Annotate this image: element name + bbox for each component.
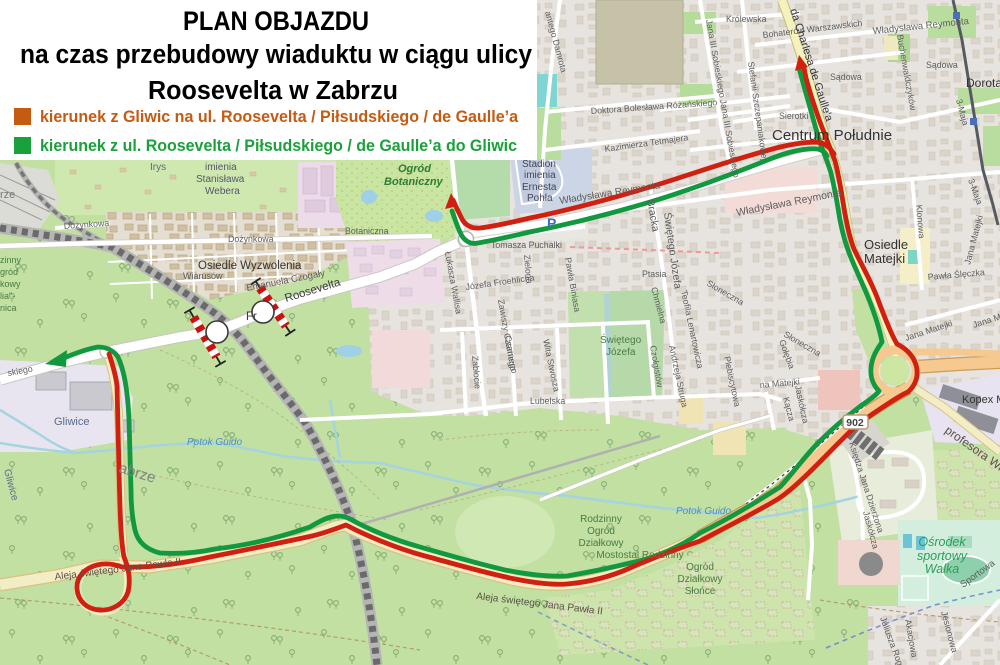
svg-text:Gliwice: Gliwice (54, 416, 89, 428)
svg-text:Królewska: Królewska (726, 14, 767, 24)
svg-text:Ogród: Ogród (686, 562, 714, 573)
svg-text:Ogród: Ogród (398, 163, 431, 175)
svg-text:lia"-: lia"- (0, 291, 15, 301)
svg-text:Wiarusów: Wiarusów (183, 271, 223, 281)
svg-text:Osiedle: Osiedle (864, 237, 908, 252)
svg-text:Sierotki: Sierotki (779, 111, 808, 121)
svg-text:Sądowa: Sądowa (830, 72, 862, 82)
svg-text:Fr: Fr (246, 311, 257, 323)
svg-text:Rodzinny: Rodzinny (580, 514, 622, 525)
svg-text:Tomasza Puchalki: Tomasza Puchalki (491, 240, 562, 250)
svg-text:Józefa: Józefa (606, 347, 636, 358)
svg-text:Irys: Irys (150, 162, 166, 173)
svg-text:Sądowa: Sądowa (926, 60, 958, 70)
svg-text:Botaniczna: Botaniczna (345, 226, 389, 236)
svg-text:Osiedle Wyzwolenia: Osiedle Wyzwolenia (198, 260, 302, 272)
svg-text:Botaniczny: Botaniczny (384, 176, 444, 188)
svg-text:Potok Guido: Potok Guido (676, 506, 731, 517)
svg-text:Matejki: Matejki (864, 251, 905, 266)
svg-text:sportowy: sportowy (917, 549, 968, 563)
svg-text:Mostostal Rodzinny: Mostostal Rodzinny (596, 550, 683, 561)
svg-text:imienia: imienia (524, 170, 556, 181)
svg-text:Pohla: Pohla (527, 193, 553, 204)
svg-text:gród: gród (0, 267, 18, 277)
svg-text:Ogród: Ogród (587, 526, 615, 537)
svg-text:rze: rze (0, 189, 15, 201)
svg-text:Ośrodek: Ośrodek (918, 535, 966, 549)
svg-text:P: P (547, 215, 556, 231)
svg-text:Słońce: Słońce (685, 586, 716, 597)
svg-text:Webera: Webera (205, 186, 240, 197)
svg-text:Stanisława: Stanisława (196, 174, 245, 185)
svg-text:zinny: zinny (0, 255, 22, 265)
svg-text:Ernesta: Ernesta (522, 182, 557, 193)
svg-text:nica: nica (0, 303, 17, 313)
svg-text:na czas przebudowy wiaduktu w: na czas przebudowy wiaduktu w ciągu ulic… (20, 41, 533, 69)
svg-text:Ptasia: Ptasia (642, 269, 667, 279)
svg-text:Dorota: Dorota (966, 76, 1000, 90)
svg-text:kierunek z Gliwic na ul. Roose: kierunek z Gliwic na ul. Roosevelta / Pi… (40, 108, 519, 126)
svg-text:Potok Guido: Potok Guido (187, 437, 242, 448)
svg-text:Działkowy: Działkowy (677, 574, 722, 585)
svg-text:kierunek z ul. Roosevelta / Pi: kierunek z ul. Roosevelta / Piłsudskiego… (40, 137, 517, 155)
svg-text:kowy: kowy (0, 279, 21, 289)
svg-text:PLAN OBJAZDU: PLAN OBJAZDU (183, 6, 369, 36)
svg-text:Walka: Walka (925, 562, 960, 576)
svg-text:Stadion: Stadion (522, 159, 556, 170)
svg-text:Działkowy: Działkowy (578, 538, 623, 549)
svg-text:Lubelska: Lubelska (530, 396, 565, 406)
svg-text:imienia: imienia (205, 162, 237, 173)
svg-text:Dożynkowa: Dożynkowa (228, 234, 274, 244)
svg-text:Świętego: Świętego (600, 333, 642, 346)
svg-text:Roosevelta w Zabrzu: Roosevelta w Zabrzu (148, 77, 398, 105)
svg-text:Kopex M: Kopex M (962, 394, 1000, 406)
svg-text:902: 902 (846, 417, 864, 429)
svg-text:Centrum Południe: Centrum Południe (772, 127, 892, 144)
